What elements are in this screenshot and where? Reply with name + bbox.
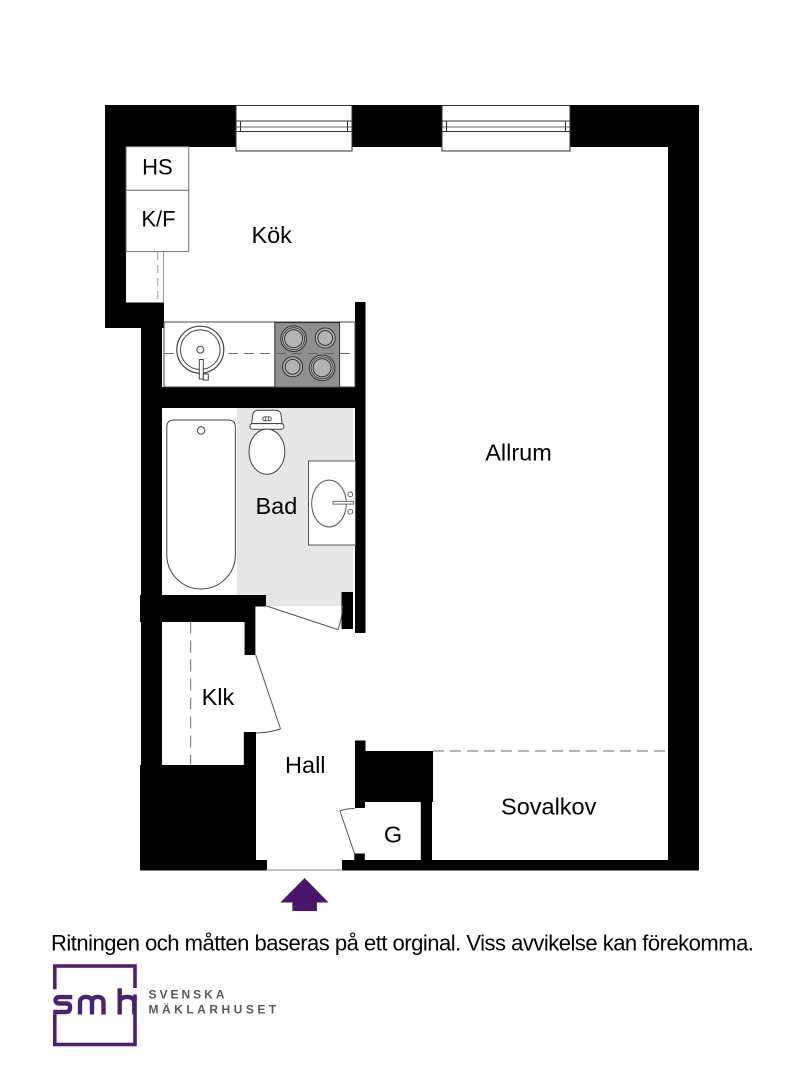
svg-text:SVENSKA: SVENSKA xyxy=(149,988,228,1002)
svg-text:HS: HS xyxy=(142,154,173,179)
svg-text:G: G xyxy=(384,822,402,848)
svg-text:Bad: Bad xyxy=(255,493,297,519)
svg-text:Klk: Klk xyxy=(202,684,235,710)
svg-text:Hall: Hall xyxy=(285,752,325,778)
svg-text:Ritningen och måtten baseras p: Ritningen och måtten baseras på ett orgi… xyxy=(51,931,753,956)
svg-text:Allrum: Allrum xyxy=(485,439,552,465)
svg-text:Kök: Kök xyxy=(251,222,292,248)
svg-text:MÄKLARHUSET: MÄKLARHUSET xyxy=(149,1001,280,1016)
svg-text:Sovalkov: Sovalkov xyxy=(501,794,597,820)
svg-text:K/F: K/F xyxy=(141,207,175,232)
